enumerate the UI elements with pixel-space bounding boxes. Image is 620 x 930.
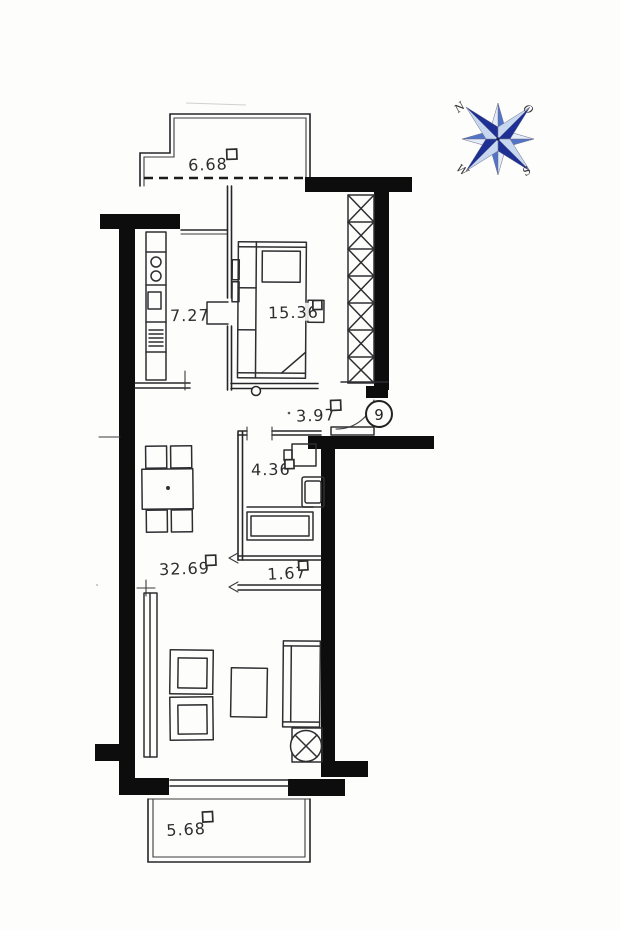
wall-bottom-left xyxy=(119,778,169,795)
wall-right-lower xyxy=(321,448,335,764)
dining-chair xyxy=(171,446,192,468)
coffee-table xyxy=(231,668,268,718)
kitchen-area: 7.27 xyxy=(170,306,210,326)
armchair xyxy=(170,697,214,741)
stove xyxy=(149,330,163,346)
sqm-symbol xyxy=(331,400,341,410)
apartment-number: 9 xyxy=(374,406,384,424)
room-label-storage: 1.67 xyxy=(267,561,309,584)
wall-bottom-right xyxy=(288,779,345,796)
sqm-symbol xyxy=(285,460,294,469)
dining-set xyxy=(142,446,194,533)
kitchen-door xyxy=(207,302,228,324)
round-table xyxy=(291,728,323,762)
bathtub xyxy=(247,507,313,540)
room-label-balcony-bottom: 5.68 xyxy=(165,812,213,840)
balcony-bottom-area: 5.68 xyxy=(166,819,207,840)
room-label-bathroom: 4.36 xyxy=(248,460,294,480)
toilet xyxy=(302,477,324,507)
wall-left-exterior xyxy=(119,214,135,793)
window-living-room xyxy=(170,780,288,786)
floor-plan-sheet: 6.68 7.27 15.36 3.97 4.36 32.69 1.67 xyxy=(0,0,620,930)
wall-right-upper-foot xyxy=(366,386,388,398)
room-label-living-room: 32.69 xyxy=(159,555,217,579)
room-label-balcony-top: 6.68 xyxy=(188,149,238,175)
wall-bedroom-bottom xyxy=(231,384,318,396)
wall-top xyxy=(305,177,412,192)
sqm-symbol xyxy=(299,561,308,570)
wall-kitchen-bedroom xyxy=(228,186,232,390)
door-knob xyxy=(252,387,261,396)
hallway-area: 3.97 xyxy=(296,405,336,425)
room-label-kitchen: 7.27 xyxy=(170,306,210,326)
wall-hall xyxy=(308,436,434,449)
wall-left-stub xyxy=(95,744,119,761)
compass-letter-n: N xyxy=(451,99,468,116)
wall-right-upper xyxy=(374,190,389,390)
compass-letter-w: W xyxy=(454,162,472,180)
wall-bathroom-left xyxy=(238,432,243,560)
compass-rose: N O S W xyxy=(451,99,536,180)
floor-plan-drawing: 6.68 7.27 15.36 3.97 4.36 32.69 1.67 xyxy=(0,0,620,930)
dining-chair xyxy=(171,510,192,532)
room-label-hallway: 3.97 xyxy=(296,400,342,426)
balcony-top-outline xyxy=(140,114,310,186)
apartment-number-badge: 9 xyxy=(366,401,392,427)
sqm-symbol xyxy=(313,300,322,309)
bedroom-area: 15.36 xyxy=(268,302,319,322)
sqm-symbol xyxy=(202,812,213,823)
dining-chair xyxy=(146,446,167,468)
dining-chair xyxy=(146,510,167,532)
sqm-symbol xyxy=(206,555,216,565)
compass-letter-s: S xyxy=(520,164,534,179)
sofa xyxy=(283,641,321,727)
entrance-door-leaf xyxy=(331,427,374,435)
wall-top-left-pier xyxy=(100,214,180,229)
balcony-top-area: 6.68 xyxy=(188,154,228,174)
kitchen-counter xyxy=(146,232,166,380)
sqm-symbol xyxy=(227,149,237,159)
room-label-bedroom: 15.36 xyxy=(265,300,322,322)
sideboard xyxy=(144,593,157,757)
armchair xyxy=(170,650,214,695)
compass-center xyxy=(496,137,499,140)
living-room-area: 32.69 xyxy=(159,558,210,579)
kitchen-sink xyxy=(151,257,161,281)
